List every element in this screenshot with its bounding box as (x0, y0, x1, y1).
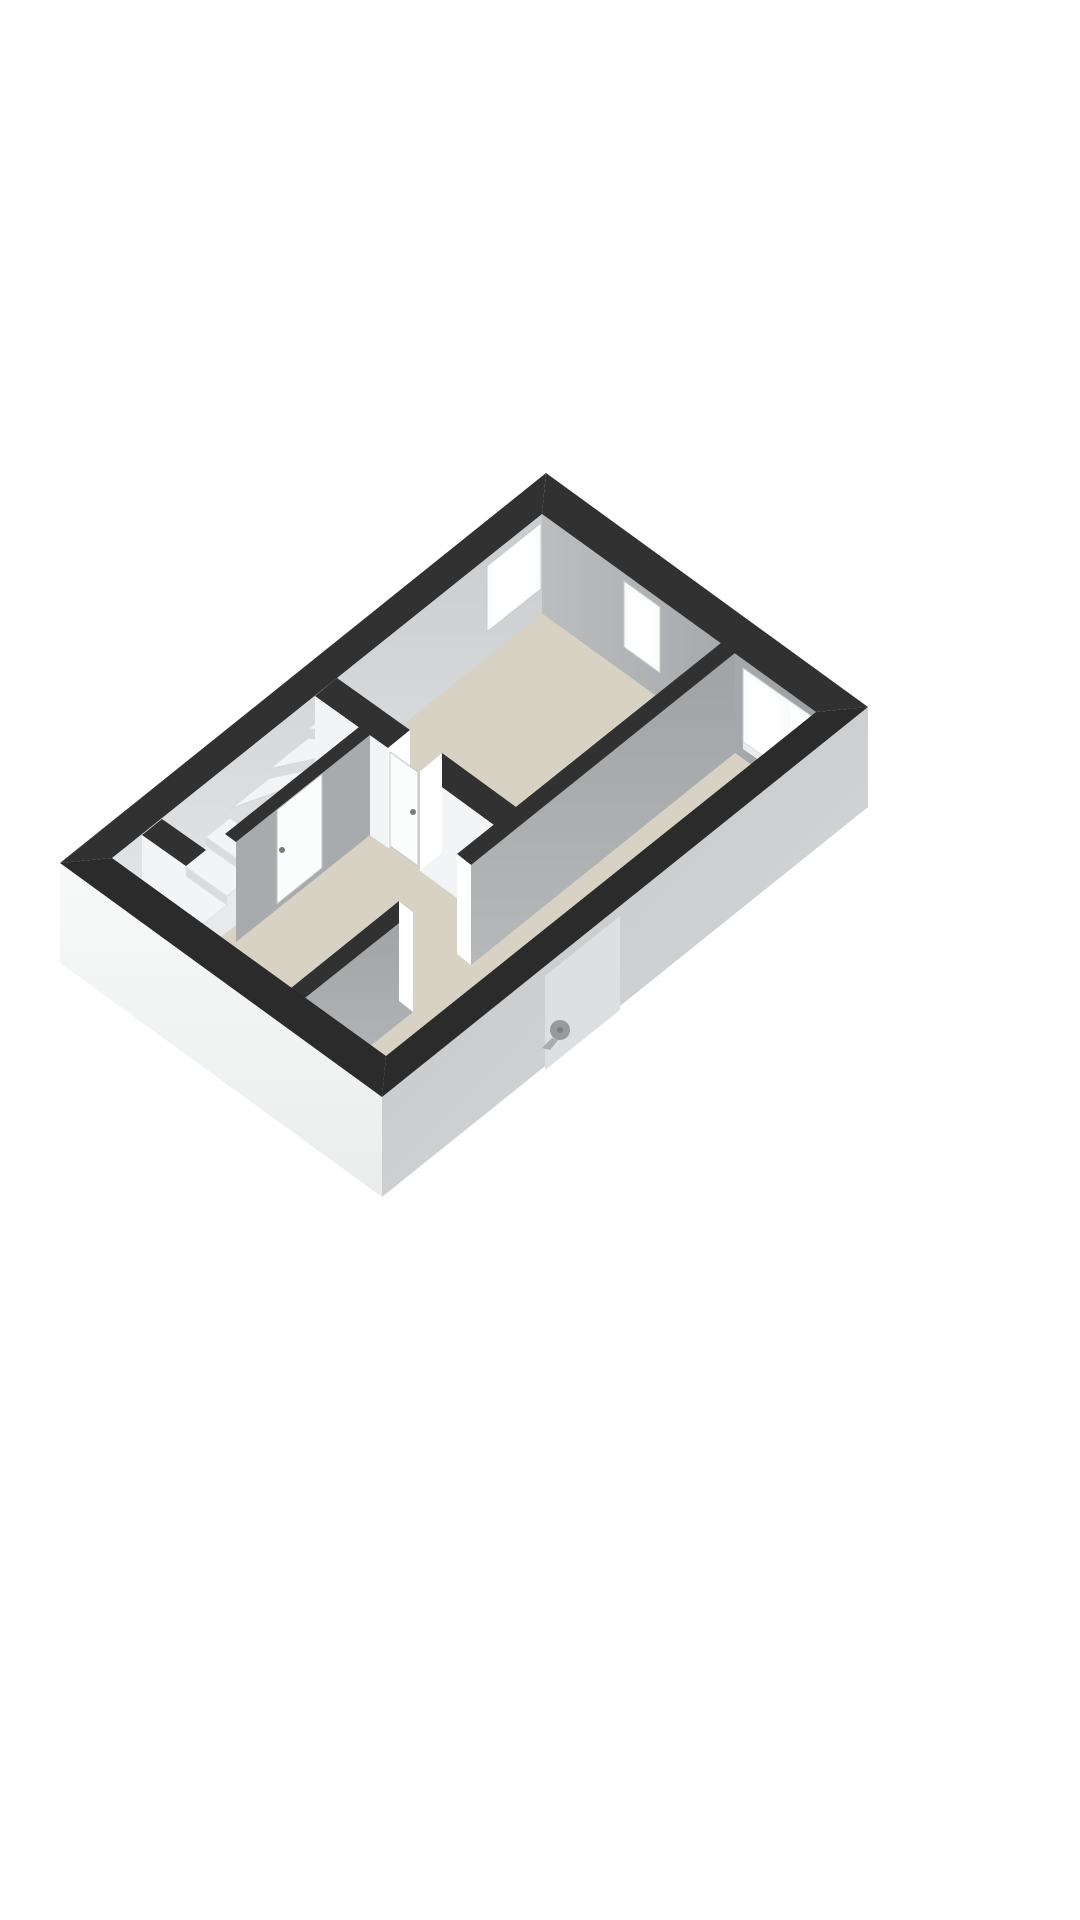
door-handle-icon (410, 809, 416, 815)
door-knob-center (557, 1027, 563, 1033)
floorplan-canvas (0, 0, 1080, 1920)
doorway-jamb-cap (399, 901, 413, 1012)
door-top-room (390, 752, 418, 866)
doorway-jamb-cap (420, 753, 442, 871)
door-leaf (390, 752, 418, 866)
door-handle-icon (279, 847, 285, 853)
floorplan-3d-view[interactable] (0, 0, 1080, 1920)
doorway-jamb-cap (457, 854, 471, 965)
